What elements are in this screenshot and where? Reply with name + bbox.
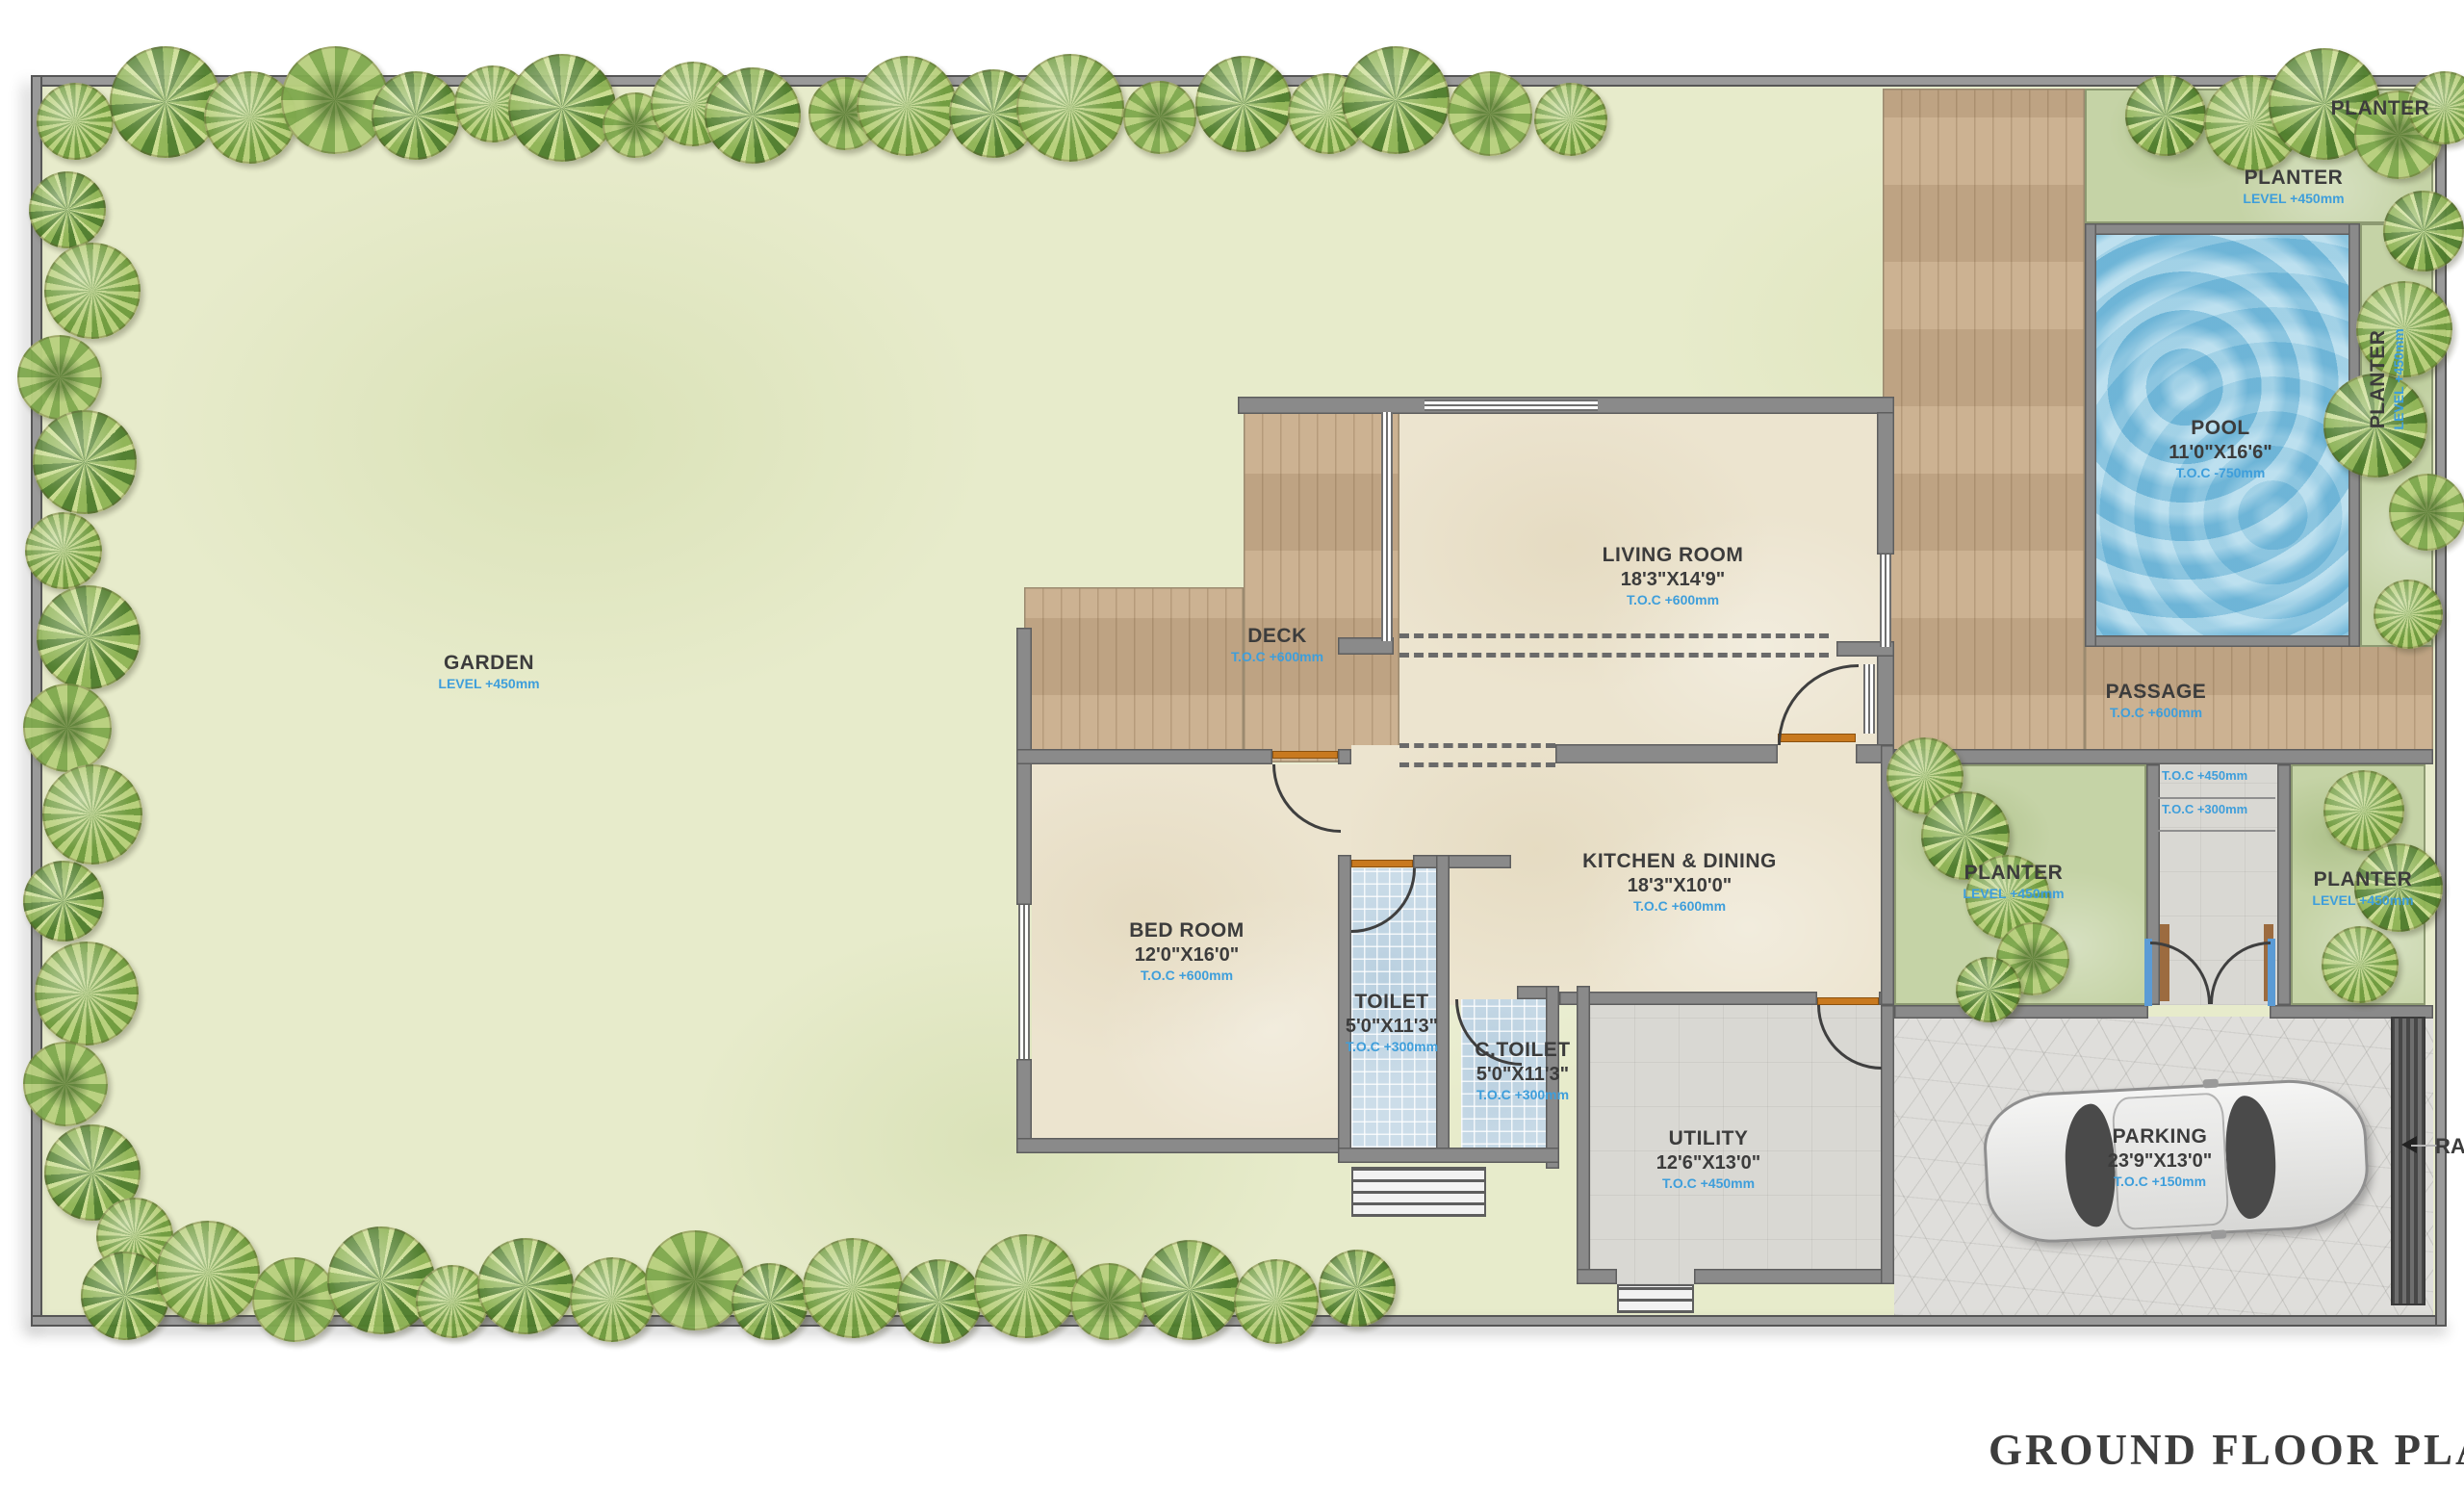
living-room-label: LIVING ROOM 18'3"X14'9" T.O.C +600mm bbox=[1603, 543, 1744, 609]
tree-icon bbox=[281, 46, 389, 154]
planter-pool-side-label: PLANTER LEVEL +450mm bbox=[2366, 328, 2408, 429]
tree-icon bbox=[252, 1257, 337, 1342]
tree-icon bbox=[1956, 957, 2021, 1022]
ramp-strip bbox=[2391, 1017, 2425, 1305]
tree-icon bbox=[156, 1221, 260, 1325]
tree-icon bbox=[1342, 46, 1450, 154]
tree-icon bbox=[23, 861, 104, 942]
tree-icon bbox=[29, 171, 106, 248]
entry-step-lower-label: T.O.C +300mm bbox=[2162, 802, 2247, 816]
tree-icon bbox=[1448, 71, 1532, 156]
tree-icon bbox=[1319, 1250, 1396, 1327]
ramp-label: RAMP bbox=[2435, 1134, 2464, 1159]
bedroom-door-sill bbox=[1272, 751, 1338, 759]
step-edge-upper bbox=[2158, 797, 2275, 799]
deck-floor bbox=[1024, 587, 1244, 762]
tree-icon bbox=[110, 46, 221, 158]
tree-icon bbox=[803, 1238, 903, 1338]
tree-icon bbox=[23, 684, 112, 772]
tree-icon bbox=[731, 1263, 808, 1340]
pool-wall-left bbox=[2085, 223, 2096, 647]
projection-dash-upper-1 bbox=[1399, 633, 1829, 638]
pool-label: POOL 11'0"X16'6" T.O.C -750mm bbox=[2169, 416, 2271, 482]
window-bedroom-west bbox=[1018, 905, 1030, 1059]
entry-step-upper-label: T.O.C +450mm bbox=[2162, 768, 2247, 783]
bedroom-label: BED ROOM 12'0"X16'0" T.O.C +600mm bbox=[1129, 918, 1245, 985]
passage-label: PASSAGE T.O.C +600mm bbox=[2106, 680, 2207, 722]
car-mirror-icon bbox=[2211, 1229, 2226, 1239]
tree-icon bbox=[1123, 81, 1196, 154]
wall-bedroom-north bbox=[1016, 749, 1272, 764]
wall-entry-north bbox=[1894, 749, 2433, 764]
tree-icon bbox=[570, 1257, 654, 1342]
tree-icon bbox=[857, 56, 957, 156]
planter-mid-label: PLANTER LEVEL +450mm bbox=[1963, 861, 2064, 903]
projection-dash-lower-1 bbox=[1399, 743, 1555, 748]
ground-floor-plan: RAMP GARDEN LEVEL +450mm DECK T.O.C +600… bbox=[0, 0, 2464, 1497]
tree-icon bbox=[1016, 54, 1124, 162]
tree-icon bbox=[1070, 1263, 1147, 1340]
wall-entry-south-a bbox=[1894, 1005, 2148, 1019]
tree-icon bbox=[2374, 580, 2443, 649]
tree-icon bbox=[17, 335, 102, 420]
tree-icon bbox=[2383, 191, 2464, 271]
planter-top-label: PLANTER LEVEL +450mm bbox=[2243, 166, 2344, 208]
wall-toilet-south bbox=[1338, 1148, 1559, 1163]
toilet-door-sill bbox=[1351, 860, 1413, 867]
projection-dash-lower-2 bbox=[1399, 762, 1555, 767]
pool-wall-bottom bbox=[2085, 635, 2360, 647]
tree-icon bbox=[33, 410, 137, 514]
tree-icon bbox=[25, 512, 102, 589]
passage-floor bbox=[1883, 89, 2085, 762]
wall-utility-south-b bbox=[1694, 1269, 1894, 1284]
tree-icon bbox=[1140, 1240, 1240, 1340]
pool-wall-top bbox=[2085, 223, 2360, 235]
wall-utility-south-a bbox=[1577, 1269, 1617, 1284]
window-living-east bbox=[1880, 555, 1891, 647]
ctoilet-label: C.TOILET 5'0"X11'3" T.O.C +300mm bbox=[1475, 1038, 1570, 1104]
wall-bedroom-south bbox=[1016, 1138, 1351, 1153]
kitchen-label: KITCHEN & DINING 18'3"X10'0" T.O.C +600m… bbox=[1582, 849, 1777, 916]
deck-label: DECK T.O.C +600mm bbox=[1231, 624, 1323, 666]
tree-icon bbox=[2125, 75, 2206, 156]
tree-icon bbox=[42, 764, 142, 865]
tree-icon bbox=[1534, 83, 1607, 156]
tree-icon bbox=[44, 243, 141, 339]
tree-icon bbox=[897, 1259, 982, 1344]
wall-utility-east bbox=[1881, 1005, 1894, 1284]
utility-exit-steps bbox=[1617, 1284, 1694, 1313]
garden-steps bbox=[1351, 1167, 1486, 1217]
tree-icon bbox=[35, 942, 139, 1045]
wall-kitchen-south bbox=[1559, 992, 1817, 1005]
deck-floor-upper bbox=[1244, 410, 1399, 762]
tree-icon bbox=[372, 71, 460, 160]
sheet-title: GROUND FLOOR PLAN bbox=[1989, 1425, 2464, 1475]
garden-label: GARDEN LEVEL +450mm bbox=[438, 651, 539, 693]
ramp-leader-line bbox=[2411, 1145, 2438, 1147]
tree-icon bbox=[2322, 926, 2399, 1003]
tree-icon bbox=[974, 1234, 1078, 1338]
tree-icon bbox=[645, 1230, 745, 1330]
window-living-north bbox=[1424, 400, 1598, 411]
tree-icon bbox=[705, 67, 801, 164]
tree-icon bbox=[477, 1238, 574, 1334]
tree-icon bbox=[37, 585, 141, 689]
car-mirror-icon bbox=[2202, 1079, 2218, 1089]
tree-icon bbox=[37, 83, 114, 160]
wall-living-south-a bbox=[1555, 744, 1778, 763]
utility-label: UTILITY 12'6"X13'0" T.O.C +450mm bbox=[1656, 1126, 1761, 1193]
wall-living-east-upper bbox=[1877, 412, 1894, 555]
planter-right-label: PLANTER LEVEL +450mm bbox=[2312, 867, 2413, 910]
tree-icon bbox=[23, 1042, 108, 1126]
tree-icon bbox=[2389, 474, 2464, 551]
toilet-label: TOILET 5'0"X11'3" T.O.C +300mm bbox=[1346, 990, 1438, 1056]
tree-icon bbox=[1234, 1259, 1319, 1344]
tree-icon bbox=[1195, 56, 1292, 152]
wall-utility-west bbox=[1577, 986, 1590, 1284]
utility-door-sill bbox=[1817, 997, 1879, 1005]
step-edge-lower bbox=[2158, 830, 2275, 832]
wall-porch-east bbox=[2277, 764, 2291, 1005]
window-beside-main-door bbox=[1863, 664, 1875, 734]
window-living-west bbox=[1381, 412, 1393, 641]
wall-bedroom-west bbox=[1016, 628, 1032, 905]
tree-icon bbox=[508, 54, 616, 162]
parking-label: PARKING 23'9"X13'0" T.O.C +150mm bbox=[2108, 1124, 2213, 1191]
wall-bedroom-north-stub bbox=[1338, 749, 1351, 764]
projection-dash-upper-2 bbox=[1399, 653, 1829, 658]
wall-toilet-north bbox=[1413, 855, 1511, 868]
tree-icon bbox=[2323, 770, 2404, 851]
planter-top-corner-label: PLANTER bbox=[2331, 96, 2430, 121]
